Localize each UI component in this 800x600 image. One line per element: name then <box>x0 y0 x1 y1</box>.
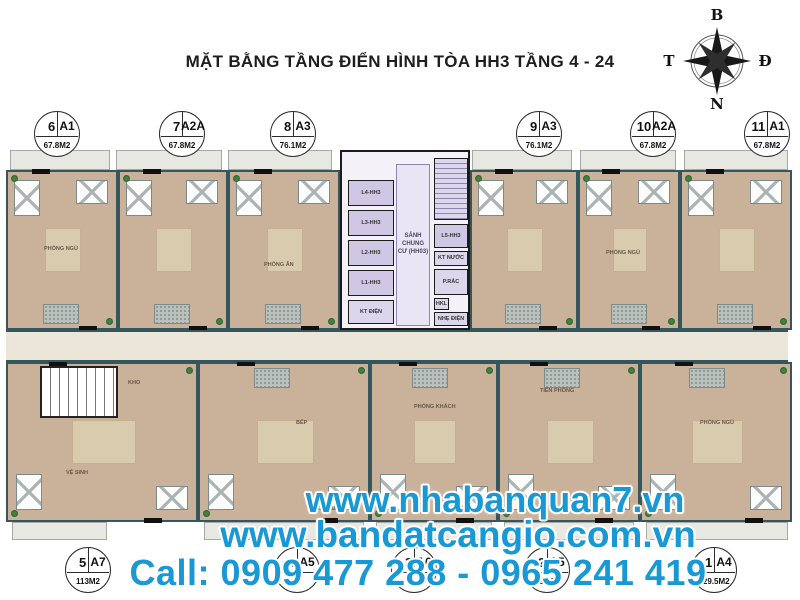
plant-icon <box>628 367 635 374</box>
bed-icon <box>478 180 504 216</box>
unit-type: A1 <box>56 119 78 133</box>
bathroom-tile <box>544 368 580 388</box>
apartment-9 <box>470 170 578 330</box>
unit-area: 113M2 <box>66 577 110 586</box>
elevator-l2: L2-HH3 <box>348 240 394 266</box>
unit-badge-5: 5 A7 113M2 <box>65 547 111 593</box>
plant-icon <box>358 367 365 374</box>
corridor <box>6 330 788 362</box>
bed-icon <box>126 180 152 216</box>
unit-area: 76.1M2 <box>517 141 561 150</box>
unit-badge-11: 11 A1 67.8M2 <box>744 111 790 157</box>
bed-icon <box>688 180 714 216</box>
plant-icon <box>583 175 590 182</box>
unit-area: 67.8M2 <box>160 141 204 150</box>
rug <box>414 420 456 464</box>
plant-icon <box>566 318 573 325</box>
unit-area: 67.8M2 <box>631 141 675 150</box>
low-voltage-room: NHẸ ĐIỆN <box>434 312 468 326</box>
core-staircase <box>434 158 468 220</box>
plant-icon <box>486 367 493 374</box>
unit-type: A2A <box>652 119 674 133</box>
unit-number: 8 <box>271 119 291 134</box>
rug <box>72 420 136 464</box>
plant-icon <box>186 367 193 374</box>
rug <box>257 420 314 464</box>
elevator-l3: L3-HH3 <box>348 210 394 236</box>
bed-icon <box>14 180 40 216</box>
elevator-l5: L5-HH3 <box>434 224 468 248</box>
bathroom-tile <box>505 304 541 324</box>
compass-south-label: N <box>710 95 724 112</box>
bathroom-tile <box>717 304 753 324</box>
plant-icon <box>475 175 482 182</box>
unit-area: 67.8M2 <box>35 141 79 150</box>
unit-type: A2A <box>181 119 203 133</box>
unit-badge-7: 7 A2A 67.8M2 <box>159 111 205 157</box>
apartment-8 <box>228 170 340 330</box>
bathroom-tile <box>689 368 725 388</box>
water-room: KT NƯỚC <box>434 251 468 266</box>
bathroom-tile <box>254 368 290 388</box>
rug <box>156 228 192 272</box>
bathroom-tile <box>412 368 448 388</box>
unit-number: 9 <box>517 119 537 134</box>
fire-staircase <box>40 366 118 418</box>
room-label-bath: VỆ SINH <box>66 470 88 476</box>
rug <box>692 420 742 464</box>
rug <box>719 228 756 272</box>
plant-icon <box>11 510 18 517</box>
compass-east-label: Đ <box>758 52 771 70</box>
bathroom-tile <box>265 304 301 324</box>
unit-badge-9: 9 A3 76.1M2 <box>516 111 562 157</box>
bed-icon <box>236 180 262 216</box>
central-core: L4-HH3 L3-HH3 L2-HH3 L1-HH3 KT ĐIỆN SẢNH… <box>340 150 470 330</box>
bed-icon <box>536 180 568 204</box>
rug <box>507 228 542 272</box>
room-label-storage: KHO <box>128 380 140 386</box>
room-label-living: PHÒNG KHÁCH <box>414 404 456 410</box>
plant-icon <box>216 318 223 325</box>
unit-badge-6: 6 A1 67.8M2 <box>34 111 80 157</box>
bed-icon <box>586 180 612 216</box>
rug <box>547 420 594 464</box>
room-label-bedroom: PHÒNG NGỦ <box>700 420 734 426</box>
unit-area: 76.1M2 <box>271 141 315 150</box>
plant-icon <box>780 367 787 374</box>
bed-icon <box>156 486 188 510</box>
unit-number: 5 <box>66 555 86 570</box>
bed-icon <box>186 180 218 204</box>
balcony <box>12 522 107 540</box>
unit-type: A3 <box>292 119 314 133</box>
room-label-dining: PHÒNG ĂN <box>264 262 294 268</box>
plant-icon <box>106 318 113 325</box>
plant-icon <box>11 175 18 182</box>
plant-icon <box>668 318 675 325</box>
technical-duct: HKL <box>434 298 449 310</box>
plant-icon <box>780 318 787 325</box>
bathroom-tile <box>154 304 190 324</box>
plant-icon <box>328 318 335 325</box>
electrical-room: KT ĐIỆN <box>348 300 394 324</box>
unit-type: A7 <box>87 555 109 569</box>
plant-icon <box>685 175 692 182</box>
bathroom-tile <box>611 304 647 324</box>
bathroom-tile <box>43 304 79 324</box>
bed-icon <box>298 180 330 204</box>
unit-area: 67.8M2 <box>745 141 789 150</box>
unit-number: 6 <box>35 119 55 134</box>
apartment-11 <box>680 170 792 330</box>
compass-west-label: T <box>663 52 675 70</box>
watermark-site2: www.bandatcangio.com.vn <box>158 514 758 556</box>
elevator-l1: L1-HH3 <box>348 270 394 296</box>
room-label-bedroom: PHÒNG NGỦ <box>44 246 78 252</box>
apartment-7 <box>118 170 228 330</box>
watermark-phone: Call: 0909 477 288 - 0965 241 419 <box>118 552 718 594</box>
floor-plan-page: MẶT BẰNG TẦNG ĐIỂN HÌNH TÒA HH3 TẦNG 4 -… <box>0 0 800 600</box>
bed-icon <box>750 180 782 204</box>
unit-number: 11 <box>745 119 765 134</box>
room-label-entry: TIỀN PHÒNG <box>540 388 574 394</box>
plant-icon <box>123 175 130 182</box>
compass-north-label: B <box>711 6 724 24</box>
communal-lobby: SẢNH CHUNG CƯ (HH03) <box>396 164 430 326</box>
unit-type: A3 <box>538 119 560 133</box>
bed-icon <box>16 474 42 510</box>
unit-badge-8: 8 A3 76.1M2 <box>270 111 316 157</box>
bed-icon <box>76 180 108 204</box>
room-label-bedroom: PHÒNG NGỦ <box>606 250 640 256</box>
unit-number: 10 <box>631 119 651 134</box>
compass-icon: B N T Đ <box>660 4 774 112</box>
unit-badge-10: 10 A2A 67.8M2 <box>630 111 676 157</box>
unit-number: 7 <box>160 119 180 134</box>
room-label-kitchen: BẾP <box>296 420 307 426</box>
unit-type: A1 <box>766 119 788 133</box>
garbage-room: P.RÁC <box>434 269 468 295</box>
compass-rose: B N T Đ <box>660 4 774 112</box>
elevator-l4: L4-HH3 <box>348 180 394 206</box>
bed-icon <box>638 180 670 204</box>
plant-icon <box>233 175 240 182</box>
